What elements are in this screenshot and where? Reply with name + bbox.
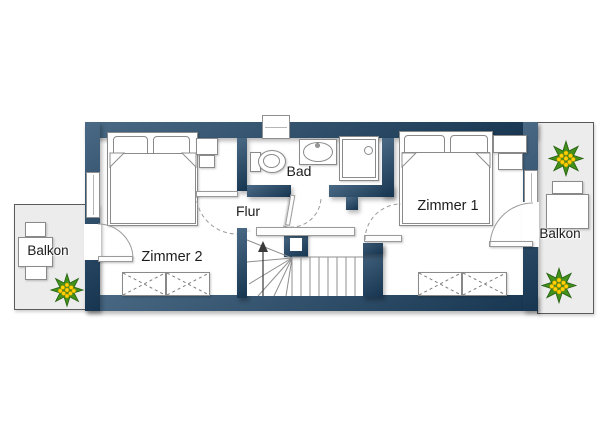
window-zimmer1-right	[524, 170, 538, 205]
balcony-left-chair-top	[25, 222, 46, 237]
room-label-zimmer2: Zimmer 2	[130, 249, 214, 265]
shower-drain	[364, 146, 373, 155]
floor-plan: Zimmer 2 Zimmer 1 Bad Flur Balkon Balkon	[0, 0, 600, 425]
wall-bad-nub	[346, 197, 358, 210]
door-leaf-zimmer1	[364, 235, 402, 242]
door-leaf-balcony-left	[98, 256, 133, 262]
room-label-bad: Bad	[281, 163, 317, 179]
door-opening-balcony-left	[84, 224, 101, 260]
wardrobe-zimmer2-cell2	[166, 272, 210, 296]
balcony-right-table	[546, 194, 589, 229]
door-leaf-zimmer2	[196, 191, 238, 197]
door-leaf-bad	[285, 195, 295, 226]
wardrobe-zimmer1-cell2	[462, 272, 507, 296]
room-label-zimmer1: Zimmer 1	[405, 198, 491, 214]
plant-icon	[50, 272, 84, 308]
stair-handrail	[256, 227, 355, 236]
stair-newel-hole	[290, 238, 302, 251]
window-bad-top	[262, 115, 290, 139]
door-leaf-balcony-right	[489, 241, 533, 247]
plant-icon	[541, 267, 577, 304]
toilet-bowl-inner	[263, 154, 280, 168]
wardrobe-zimmer1-cell1	[418, 272, 462, 296]
wall-zimmer2-stairs-lower	[237, 228, 247, 298]
shower-tray-inner	[342, 139, 376, 178]
plant-icon	[548, 140, 584, 177]
door-arc-balcony-left	[98, 224, 133, 259]
sink-faucet	[315, 143, 320, 148]
wall-bad-south-west	[247, 185, 291, 197]
nightstand-zimmer1	[493, 135, 527, 153]
wall-zimmer2-flur-upper	[237, 138, 247, 191]
stool-zimmer2	[199, 155, 215, 168]
balcony-right-chair	[552, 181, 583, 194]
wall-bad-zimmer1	[382, 138, 394, 197]
wall-bottom	[85, 295, 537, 311]
bed-zimmer2-blanket	[110, 153, 196, 224]
balcony-left-chair-bottom	[25, 266, 47, 280]
stool-zimmer1	[498, 153, 523, 170]
room-label-balkon-left: Balkon	[20, 243, 76, 258]
wardrobe-zimmer2-cell1	[122, 272, 166, 296]
room-label-flur: Flur	[227, 203, 269, 219]
window-zimmer2-left	[86, 172, 100, 218]
nightstand-zimmer2	[196, 138, 218, 155]
room-label-balkon-right: Balkon	[534, 226, 586, 241]
